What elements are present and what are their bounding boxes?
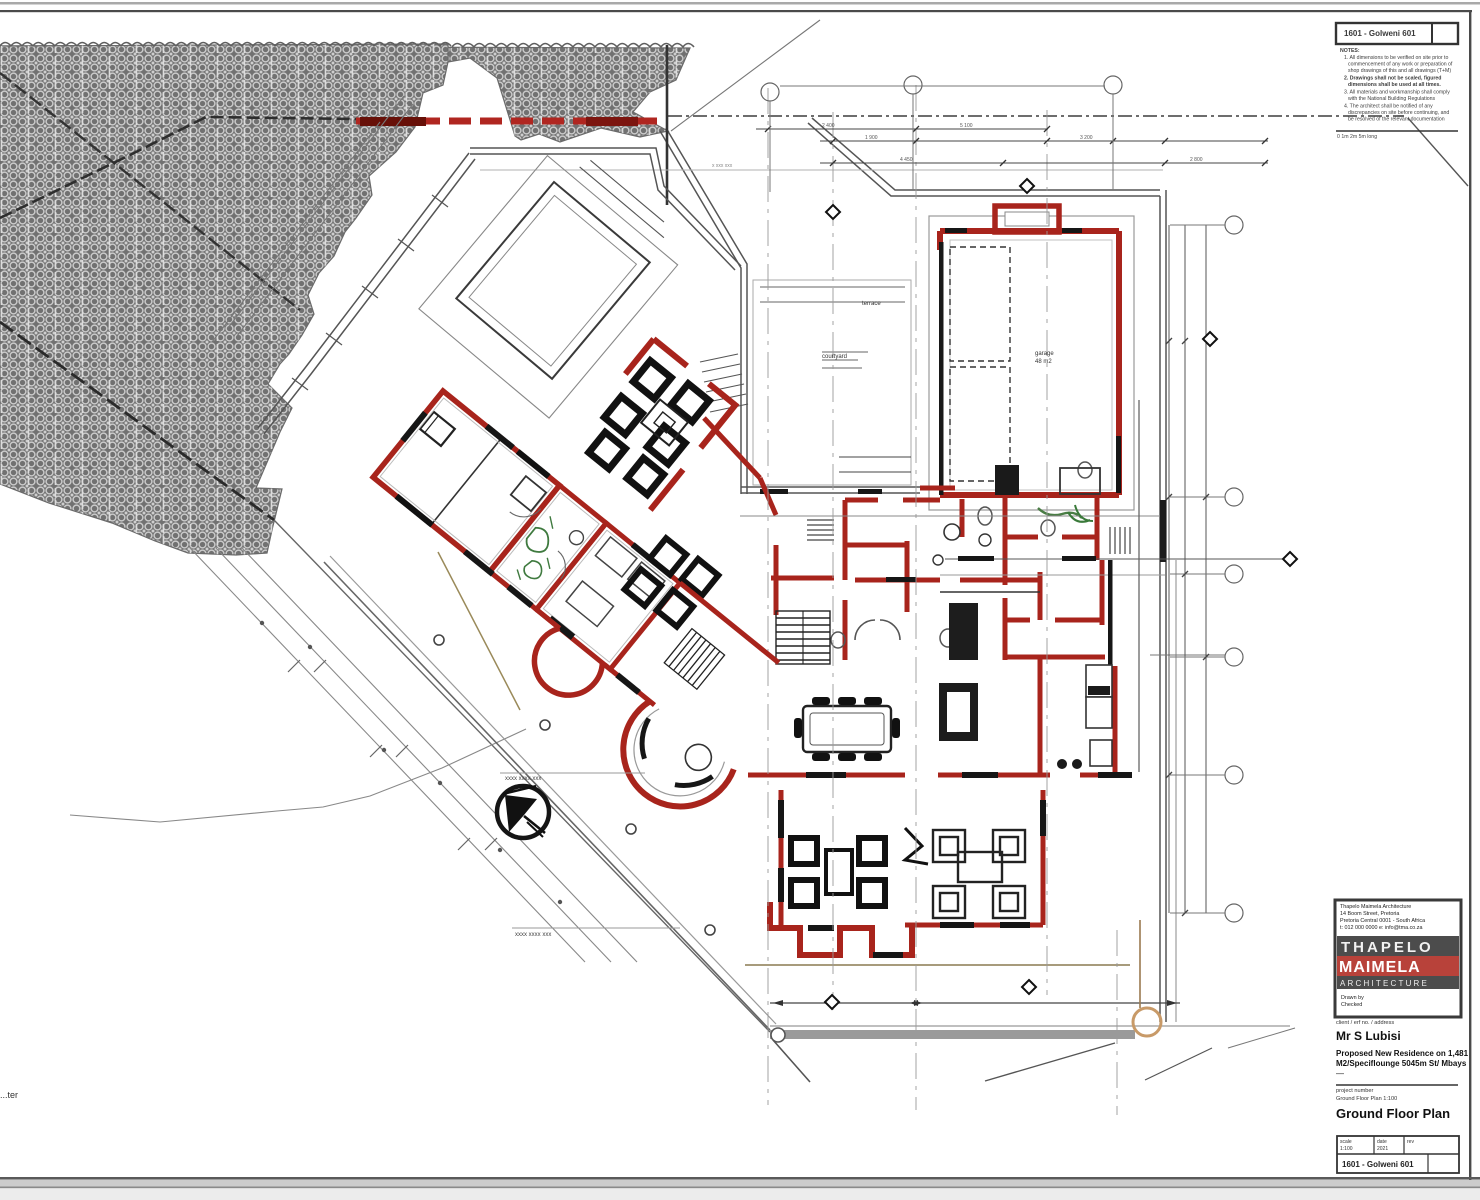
svg-text:date: date bbox=[1377, 1139, 1387, 1145]
svg-text:2. Drawings shall not be scale: 2. Drawings shall not be scaled, figured bbox=[1344, 76, 1441, 82]
svg-text:0 1m 2m 5m: 0 1m 2m 5m long bbox=[1337, 134, 1377, 140]
svg-text:1. All dimensions to be verifi: 1. All dimensions to be verified on site… bbox=[1344, 55, 1448, 61]
svg-text:1:100: 1:100 bbox=[1340, 1146, 1353, 1152]
svg-text:2 400: 2 400 bbox=[822, 123, 835, 129]
svg-text:2 800: 2 800 bbox=[1190, 157, 1203, 163]
svg-text:5 100: 5 100 bbox=[960, 123, 973, 129]
svg-text:Thapelo Maimela Architecture: Thapelo Maimela Architecture bbox=[1340, 904, 1411, 910]
svg-text:project number: project number bbox=[1336, 1088, 1373, 1094]
svg-text:4. The architect shall be noti: 4. The architect shall be notified of an… bbox=[1344, 104, 1433, 110]
svg-text:client / erf no. / address: client / erf no. / address bbox=[1336, 1020, 1394, 1026]
svg-text:3. All materials and workmansh: 3. All materials and workmanship shall c… bbox=[1344, 90, 1450, 96]
svg-text:Pretoria Central 0001 - South: Pretoria Central 0001 - South Africa bbox=[1340, 918, 1425, 924]
svg-text:xxxx xxxx xxx: xxxx xxxx xxx bbox=[515, 932, 551, 938]
svg-text:...ter: ...ter bbox=[0, 1090, 18, 1100]
svg-text:1 900: 1 900 bbox=[865, 135, 878, 141]
svg-text:Ground Floor Plan: Ground Floor Plan bbox=[1336, 1106, 1450, 1121]
svg-text:Ground Floor Plan 1:100: Ground Floor Plan 1:100 bbox=[1336, 1096, 1397, 1102]
svg-text:shop drawings of this and all: shop drawings of this and all drawings (… bbox=[1348, 68, 1451, 74]
svg-text:be resolved of the relevant do: be resolved of the relevant documentatio… bbox=[1348, 117, 1445, 123]
svg-text:Drawn by: Drawn by bbox=[1341, 995, 1364, 1001]
svg-text:terrace: terrace bbox=[862, 301, 881, 307]
svg-text:1601 - Golweni 601: 1601 - Golweni 601 bbox=[1342, 1160, 1414, 1169]
svg-text:48 m2: 48 m2 bbox=[1035, 359, 1052, 365]
svg-text:x xxx xxx: x xxx xxx bbox=[712, 163, 733, 169]
svg-text:Checked: Checked bbox=[1341, 1002, 1362, 1008]
svg-text:t: 012 000 0000 e: info@tma.co: t: 012 000 0000 e: info@tma.co.za bbox=[1340, 925, 1423, 931]
svg-text:1601 - Golweni 601: 1601 - Golweni 601 bbox=[1344, 29, 1416, 38]
svg-text:Mr S Lubisi: Mr S Lubisi bbox=[1336, 1029, 1401, 1043]
svg-text:NOTES:: NOTES: bbox=[1340, 48, 1360, 54]
svg-text:3 200: 3 200 bbox=[1080, 135, 1093, 141]
svg-text:scale: scale bbox=[1340, 1139, 1352, 1145]
svg-text:ARCHITECTURE: ARCHITECTURE bbox=[1340, 979, 1429, 988]
svg-text:garage: garage bbox=[1035, 351, 1054, 357]
svg-text:THAPELO: THAPELO bbox=[1341, 939, 1434, 956]
svg-text:4 450: 4 450 bbox=[900, 157, 913, 163]
svg-text:discrepancies on site before c: discrepancies on site before continuing,… bbox=[1348, 110, 1449, 116]
svg-text:Proposed New Residence on 1,48: Proposed New Residence on 1,481 bbox=[1336, 1049, 1469, 1058]
svg-text:dimensions shall be used at al: dimensions shall be used at all times. bbox=[1348, 82, 1441, 88]
svg-text:commencement of any work or pr: commencement of any work or preparation … bbox=[1348, 62, 1453, 68]
svg-text:MAIMELA: MAIMELA bbox=[1339, 959, 1421, 976]
svg-text:14 Boom Street, Pretoria: 14 Boom Street, Pretoria bbox=[1340, 911, 1399, 917]
svg-text:with the National Building Reg: with the National Building Regulations bbox=[1348, 96, 1435, 102]
svg-text:xxxx xxxx xxx: xxxx xxxx xxx bbox=[505, 776, 541, 782]
svg-text:courtyard: courtyard bbox=[822, 354, 847, 360]
svg-text:M2/Speciflounge 5045m St/ Mbay: M2/Speciflounge 5045m St/ Mbays bbox=[1336, 1059, 1467, 1068]
svg-text:rev: rev bbox=[1407, 1139, 1414, 1145]
svg-text:2021: 2021 bbox=[1377, 1146, 1388, 1152]
svg-text:—: — bbox=[1336, 1069, 1344, 1078]
